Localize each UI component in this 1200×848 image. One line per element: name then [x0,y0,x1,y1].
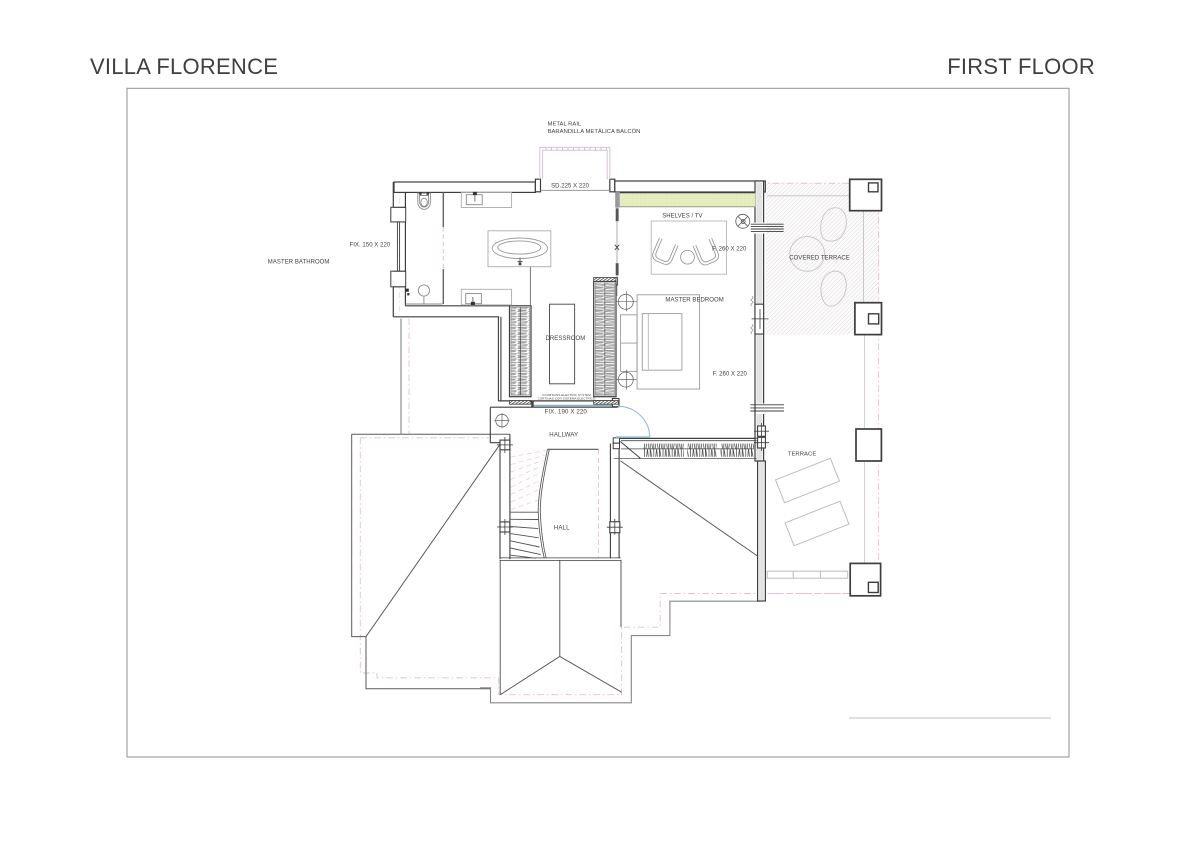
svg-text:FIX. 150 X 220: FIX. 150 X 220 [350,242,391,248]
svg-text:CORTINAS CON SISTEMA ELECTRICO: CORTINAS CON SISTEMA ELECTRICO [538,397,596,401]
svg-text:FIX. 190 X 220: FIX. 190 X 220 [545,408,588,415]
svg-text:SHELVES / TV: SHELVES / TV [662,213,702,219]
svg-text:MASTER BEDROOM: MASTER BEDROOM [665,297,723,303]
svg-text:BARANDILLA METÁLICA BALCÓN: BARANDILLA METÁLICA BALCÓN [548,128,641,135]
svg-text:METAL RAIL: METAL RAIL [548,122,582,128]
svg-text:TERRACE: TERRACE [788,451,817,457]
svg-text:HALL: HALL [554,525,570,532]
svg-text:F. 260 X 220: F. 260 X 220 [713,372,748,378]
svg-text:HALLWAY: HALLWAY [549,432,578,439]
svg-text:SD.225 X 220: SD.225 X 220 [551,184,590,190]
svg-text:COVERED TERRACE: COVERED TERRACE [789,255,850,261]
svg-text:FIRST FLOOR: FIRST FLOOR [947,54,1095,79]
svg-text:DRESSROOM: DRESSROOM [546,336,586,342]
svg-text:MASTER BATHROOM: MASTER BATHROOM [268,260,330,266]
svg-text:F. 260 X 220: F. 260 X 220 [712,246,747,252]
svg-text:VILLA FLORENCE: VILLA FLORENCE [90,54,278,79]
